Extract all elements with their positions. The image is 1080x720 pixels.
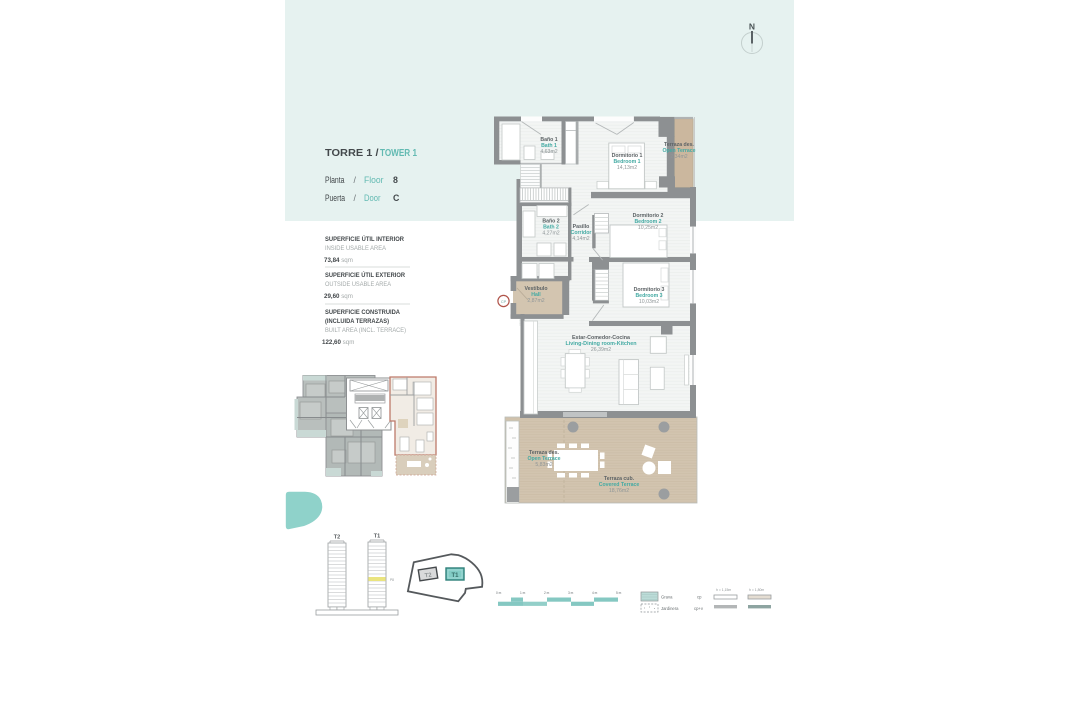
svg-text:h = 1,15m: h = 1,15m	[716, 588, 731, 592]
svg-text:BUILT AREA (INCL. TERRACE): BUILT AREA (INCL. TERRACE)	[325, 327, 406, 334]
svg-text:TORRE 1 /: TORRE 1 /	[325, 147, 379, 159]
svg-text:2 m: 2 m	[544, 591, 550, 595]
svg-text:4,14m2: 4,14m2	[572, 236, 589, 242]
svg-text:SUPERFICIE CONSTRUIDA: SUPERFICIE CONSTRUIDA	[325, 309, 400, 316]
svg-text:3 m: 3 m	[568, 591, 574, 595]
svg-text:1 m: 1 m	[520, 591, 526, 595]
svg-text:10,25m2: 10,25m2	[638, 225, 658, 231]
svg-text:5 m: 5 m	[616, 591, 622, 595]
svg-text:(INCLUIDA TERRAZAS): (INCLUIDA TERRAZAS)	[325, 318, 389, 325]
svg-text:C: C	[393, 193, 400, 203]
svg-text:4,63m2: 4,63m2	[540, 149, 557, 155]
svg-text:2,34m2: 2,34m2	[670, 154, 687, 160]
svg-text:5,83m2: 5,83m2	[535, 462, 552, 468]
svg-text:8: 8	[393, 175, 398, 185]
svg-text:N: N	[749, 22, 755, 32]
svg-text:Floor: Floor	[364, 175, 384, 185]
svg-text:CP: CP	[501, 300, 507, 304]
svg-text:122,60 sqm: 122,60 sqm	[322, 339, 354, 346]
svg-text:TOWER 1: TOWER 1	[380, 147, 417, 159]
svg-text:Door: Door	[364, 193, 381, 203]
svg-text:cp: cp	[697, 595, 702, 600]
svg-text:T1: T1	[374, 534, 380, 540]
svg-text:29,60 sqm: 29,60 sqm	[324, 293, 353, 300]
svg-text:Puerta: Puerta	[325, 193, 345, 203]
svg-text:14,13m2: 14,13m2	[617, 165, 637, 171]
svg-text:4,27m2: 4,27m2	[542, 231, 559, 237]
svg-text:Planta: Planta	[325, 175, 345, 185]
svg-text:4 m: 4 m	[592, 591, 598, 595]
svg-text:73,84 sqm: 73,84 sqm	[324, 257, 353, 264]
svg-text:cp+v: cp+v	[694, 606, 704, 611]
svg-text:18,76m2: 18,76m2	[609, 488, 629, 494]
svg-text:SUPERFICIE ÚTIL EXTERIOR: SUPERFICIE ÚTIL EXTERIOR	[325, 272, 405, 279]
svg-text:T2: T2	[334, 535, 340, 541]
svg-text:SUPERFICIE ÚTIL INTERIOR: SUPERFICIE ÚTIL INTERIOR	[325, 236, 404, 243]
svg-text:2,87m2: 2,87m2	[527, 298, 544, 304]
svg-text:P8: P8	[390, 578, 394, 582]
svg-text:T1: T1	[451, 573, 459, 579]
svg-text:Jardinera: Jardinera	[661, 606, 679, 611]
svg-text:OUTSIDE USABLE AREA: OUTSIDE USABLE AREA	[325, 281, 392, 288]
svg-text:h = 1,80m: h = 1,80m	[749, 588, 764, 592]
svg-text:INSIDE USABLE AREA: INSIDE USABLE AREA	[325, 245, 387, 252]
svg-text:10,03m2: 10,03m2	[639, 299, 659, 305]
svg-text:26,39m2: 26,39m2	[591, 347, 611, 353]
svg-text:0 m: 0 m	[496, 591, 502, 595]
svg-text:Grava: Grava	[661, 595, 673, 600]
